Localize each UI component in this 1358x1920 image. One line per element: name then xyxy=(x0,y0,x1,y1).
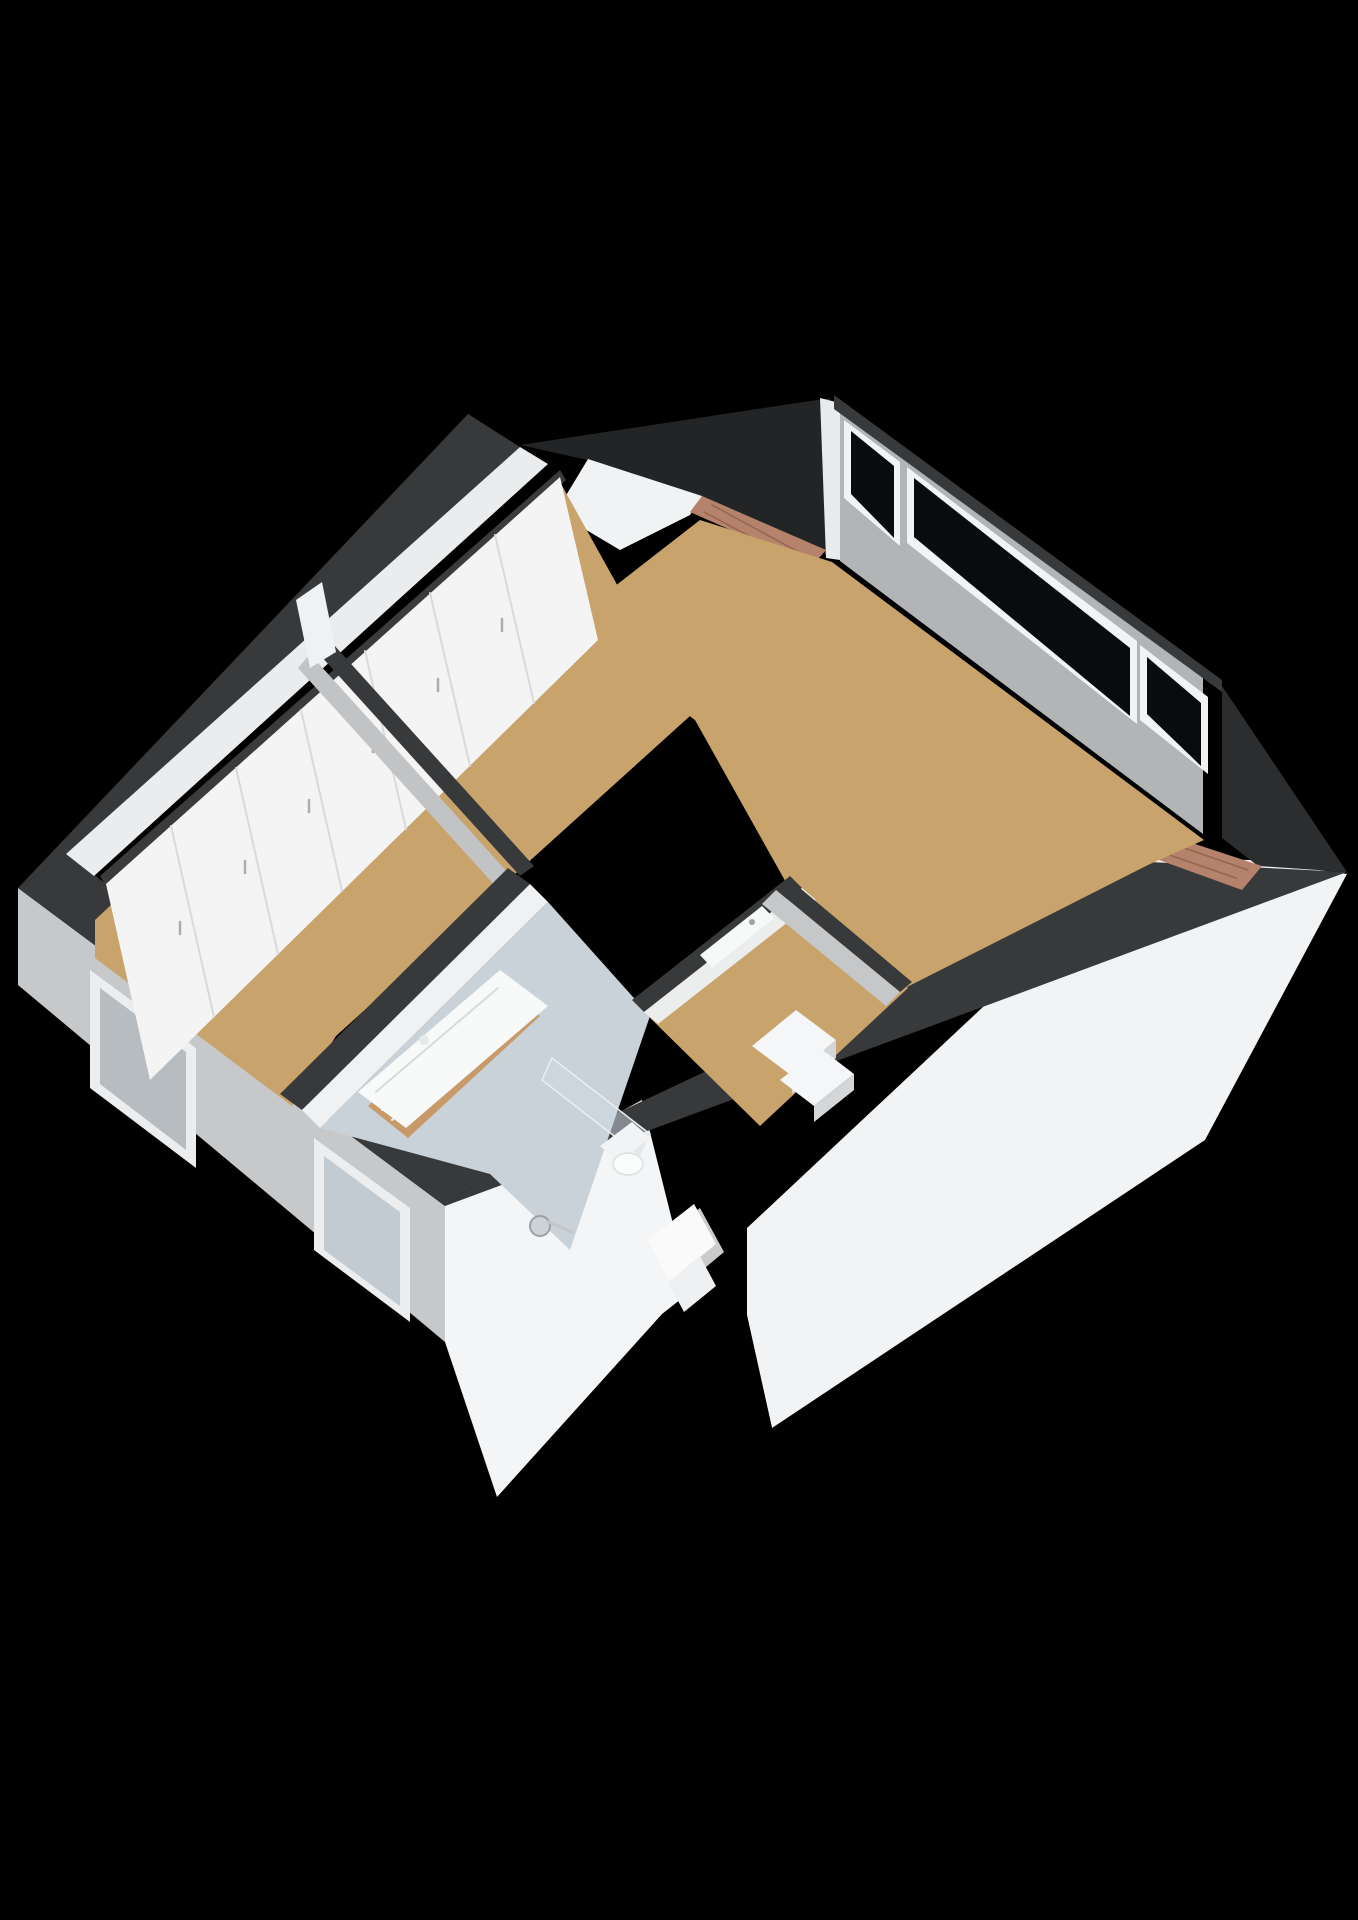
landing-door-handle xyxy=(749,919,755,925)
floorplan-3d-view xyxy=(0,0,1358,1920)
toilet-bowl xyxy=(613,1153,643,1175)
floorplan-3d-canvas xyxy=(0,0,1358,1920)
shower-drain xyxy=(530,1216,550,1236)
vanity-faucet xyxy=(419,1035,429,1045)
